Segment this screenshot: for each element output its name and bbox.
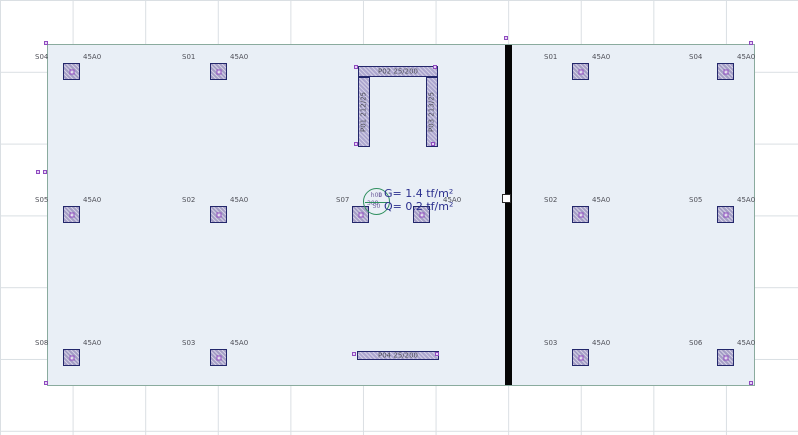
column-s03[interactable] [572,349,589,366]
column-section-label: 45A0 [737,340,755,347]
column-name-label: S03 [544,340,557,347]
node-marker[interactable] [749,41,753,45]
column-s08[interactable] [63,349,80,366]
column-name-label: S04 [689,54,702,61]
cad-canvas[interactable]: S0445A0S0145A0S0545A0S0245A0S0745A0S0845… [0,0,798,435]
column-section-label: 45A0 [83,197,101,204]
column-name-label: S03 [182,340,195,347]
wall-p04[interactable]: P04 25/200 [357,351,439,360]
wall-p02[interactable]: P02 25/200 [358,66,438,77]
column-s03[interactable] [210,349,227,366]
node-marker[interactable] [354,65,358,69]
column-section-label: 45A0 [83,54,101,61]
column-node-marker [69,69,74,74]
column-node-marker [723,69,728,74]
column-name-label: S02 [182,197,195,204]
column-node-marker [723,355,728,360]
column-section-label: 45A0 [443,197,461,204]
node-marker[interactable] [44,41,48,45]
column-s05[interactable] [63,206,80,223]
node-marker[interactable] [354,142,358,146]
column-name-label: S07 [336,197,349,204]
column-section-label: 45A0 [592,340,610,347]
annotation-text: 308 [367,201,378,207]
column-section-label: 45A0 [230,197,248,204]
node-marker[interactable] [435,352,439,356]
node-marker[interactable] [431,142,435,146]
column-s05[interactable] [717,206,734,223]
node-marker[interactable] [749,381,753,385]
column-section-label: 45A0 [230,340,248,347]
column-name-label: S02 [544,197,557,204]
node-marker[interactable] [36,170,40,174]
column-s04[interactable] [63,63,80,80]
wall-name-label: P03 213/25 [429,92,436,132]
entities-layer: S0445A0S0145A0S0545A0S0245A0S0745A0S0845… [0,0,798,435]
column-s06[interactable] [717,349,734,366]
column-node-marker [419,212,424,217]
annotation-text: 1 [378,193,382,199]
wall-name-label: P02 25/200 [378,68,418,75]
column-node-marker [216,212,221,217]
wall-name-label: P01 212/25 [361,92,368,132]
column-node-marker [578,212,583,217]
column-node-marker [723,212,728,217]
node-marker[interactable] [433,65,437,69]
column-unnamed[interactable] [413,206,430,223]
shear-wall-divider[interactable] [505,45,512,385]
node-marker[interactable] [352,352,356,356]
column-node-marker [578,355,583,360]
column-name-label: S05 [689,197,702,204]
column-s01[interactable] [210,63,227,80]
column-node-marker [216,355,221,360]
column-name-label: S05 [35,197,48,204]
column-node-marker [358,212,363,217]
selection-handle[interactable] [502,194,511,203]
column-s07[interactable] [352,206,369,223]
column-node-marker [69,212,74,217]
column-s04[interactable] [717,63,734,80]
column-node-marker [216,69,221,74]
column-section-label: 45A0 [83,340,101,347]
column-name-label: S04 [35,54,48,61]
column-section-label: 45A0 [592,197,610,204]
column-s01[interactable] [572,63,589,80]
column-node-marker [69,355,74,360]
column-s02[interactable] [572,206,589,223]
column-name-label: S01 [544,54,557,61]
column-section-label: 45A0 [230,54,248,61]
column-name-label: S06 [689,340,702,347]
node-marker[interactable] [44,381,48,385]
column-name-label: S01 [182,54,195,61]
node-marker[interactable] [43,170,47,174]
wall-p03[interactable]: P03 213/25 [426,77,438,147]
column-s02[interactable] [210,206,227,223]
node-marker[interactable] [504,36,508,40]
column-section-label: 45A0 [737,54,755,61]
column-node-marker [578,69,583,74]
wall-name-label: P04 25/200 [378,352,418,359]
column-section-label: 45A0 [737,197,755,204]
column-section-label: 45A0 [592,54,610,61]
wall-p01[interactable]: P01 212/25 [358,77,370,147]
column-name-label: S08 [35,340,48,347]
